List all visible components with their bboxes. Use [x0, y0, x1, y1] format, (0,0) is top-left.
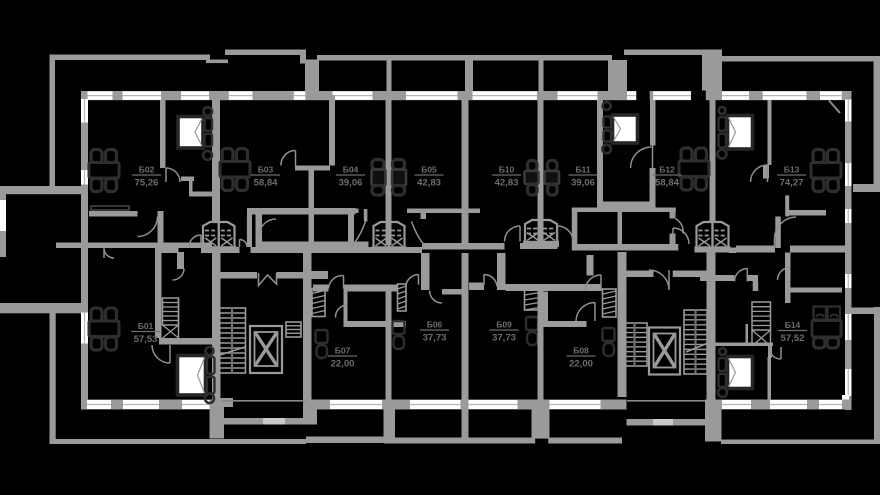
svg-text:Б11: Б11 [575, 165, 590, 175]
svg-text:39,06: 39,06 [571, 178, 595, 189]
svg-text:Б14: Б14 [785, 320, 801, 330]
svg-text:Б05: Б05 [421, 165, 437, 175]
svg-text:Б10: Б10 [499, 165, 515, 175]
svg-text:Б07: Б07 [335, 346, 351, 356]
svg-text:Б03: Б03 [258, 165, 274, 175]
svg-text:57,53: 57,53 [134, 334, 158, 345]
svg-text:Б04: Б04 [343, 165, 359, 175]
svg-text:Б02: Б02 [139, 165, 155, 175]
svg-text:37,73: 37,73 [423, 333, 447, 344]
svg-text:58,84: 58,84 [254, 178, 278, 189]
svg-text:Б08: Б08 [573, 346, 589, 356]
svg-text:74,27: 74,27 [780, 178, 804, 189]
svg-text:Б01: Б01 [138, 321, 154, 331]
svg-text:39,06: 39,06 [339, 178, 363, 189]
svg-text:Б06: Б06 [427, 320, 443, 330]
svg-text:Б13: Б13 [784, 165, 800, 175]
svg-text:75,26: 75,26 [135, 178, 159, 189]
svg-text:22,00: 22,00 [331, 359, 355, 370]
svg-text:37,73: 37,73 [492, 333, 516, 344]
svg-text:22,00: 22,00 [569, 359, 593, 370]
svg-text:Б12: Б12 [659, 165, 675, 175]
svg-text:Б09: Б09 [496, 320, 512, 330]
svg-text:42,83: 42,83 [417, 178, 441, 189]
svg-text:42,83: 42,83 [495, 178, 519, 189]
svg-text:58,84: 58,84 [655, 178, 679, 189]
svg-text:57,52: 57,52 [781, 333, 805, 344]
